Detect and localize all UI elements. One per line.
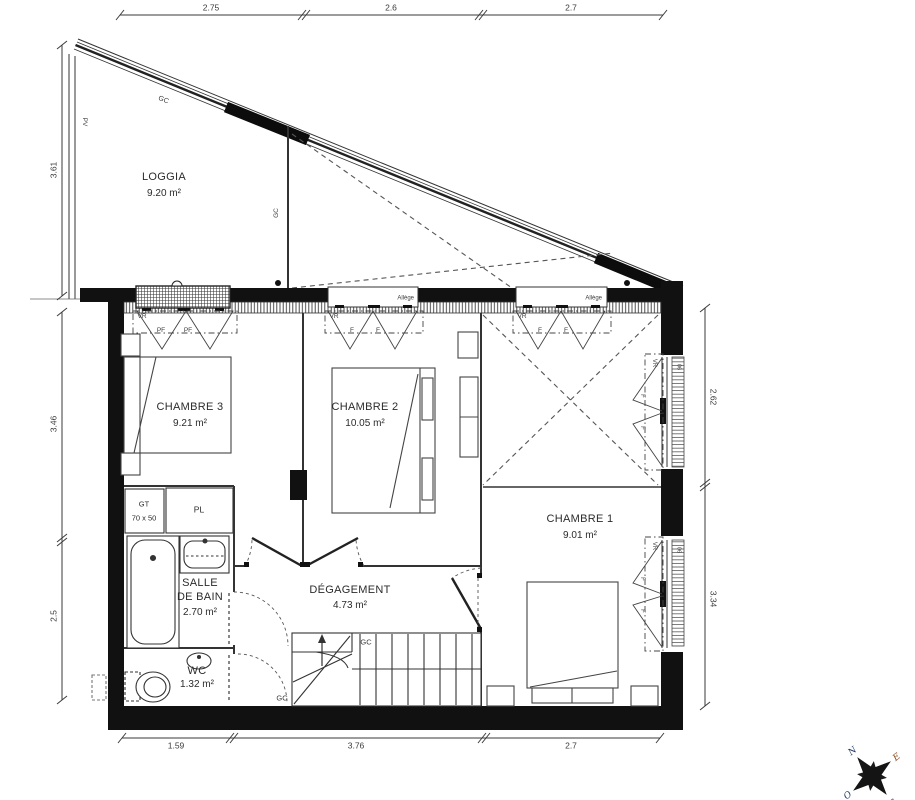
f-label-7: F: [637, 577, 645, 581]
dim-left-2: 3.46: [49, 416, 60, 433]
allege-label-1: Allège: [397, 295, 414, 303]
gc-wc-label: GC: [276, 693, 287, 702]
compass-rose-icon: N E S O: [822, 726, 915, 800]
f-label-4: F: [564, 327, 568, 335]
degagement-name: DÉGAGEMENT: [309, 584, 390, 598]
shutter-code-upper: 06: [675, 364, 682, 370]
compass-east-label: E: [891, 751, 903, 764]
loggia-under-slope-cross: [292, 134, 630, 288]
duct-block: [290, 470, 307, 500]
dim-right-2: 3.34: [708, 591, 719, 608]
pf-label-1: PF: [157, 327, 165, 335]
under-slope-zone: [483, 315, 661, 487]
vr-label-3: VR: [517, 313, 526, 321]
floor-plan: N E S O LOGGIA 9.20 m² CHAMBRE 3 9.21 m²…: [0, 0, 915, 800]
bathroom-fixtures: [125, 488, 233, 648]
chambre2-area: 10.05 m²: [345, 418, 384, 431]
chambre1-name: CHAMBRE 1: [547, 513, 614, 527]
salle-de-bain-name-2: DE BAIN: [177, 591, 223, 605]
wc-name: WC: [188, 665, 207, 679]
chambre3-area: 9.21 m²: [173, 418, 207, 431]
compass-north-label: N: [846, 745, 860, 759]
chambre3-name: CHAMBRE 3: [157, 401, 224, 415]
door-chambre2: [305, 538, 364, 567]
dim-left-1: 3.61: [49, 162, 60, 179]
gt-size-label: 70 x 50: [132, 513, 157, 522]
gc-divider-label: GC: [273, 208, 281, 218]
dim-bottom-3: 2.7: [565, 741, 577, 752]
pv-label: PV: [80, 118, 88, 127]
dim-bottom-1: 1.59: [168, 741, 185, 752]
loggia-sloped-glazing: [74, 39, 683, 292]
loggia-area: 9.20 m²: [147, 188, 181, 201]
f-label-6: F: [637, 426, 645, 430]
pl-label: PL: [194, 505, 204, 516]
dim-top-3: 2.7: [565, 3, 577, 14]
furniture-chambre1: [487, 582, 658, 706]
window-right-upper: [633, 354, 684, 470]
gt-label: GT: [139, 499, 149, 508]
degagement-area: 4.73 m²: [333, 600, 367, 613]
f-label-5: F: [637, 394, 645, 398]
loggia-name: LOGGIA: [142, 171, 186, 185]
floor-plan-drawing: N E S O: [0, 0, 915, 800]
f-label-3: F: [538, 327, 542, 335]
gc-stairs-label: GC: [360, 637, 371, 646]
pf-label-2: PF: [184, 327, 192, 335]
door-chambre3: [244, 538, 305, 567]
window-chambre3: [136, 281, 230, 311]
dim-top-1: 2.75: [203, 3, 220, 14]
compass-west-label: O: [842, 789, 854, 800]
loggia-left-wall: [69, 54, 75, 299]
vr-label-right-upper: VR: [649, 359, 657, 367]
staircase: [292, 633, 481, 706]
vr-label-2: VR: [329, 313, 338, 321]
door-chambre1: [452, 568, 482, 632]
f-label-2: F: [376, 327, 380, 335]
vr-label-1: VR: [137, 313, 146, 321]
vr-label-right-lower: VR: [649, 542, 657, 550]
dim-bottom-2: 3.76: [348, 741, 365, 752]
dim-top-2: 2.6: [385, 3, 397, 14]
f-label-1: F: [350, 327, 354, 335]
salle-de-bain-area: 2.70 m²: [183, 607, 217, 620]
wall-left: [108, 299, 124, 730]
window-right-lower: [633, 536, 684, 652]
wall-bottom: [108, 706, 683, 730]
salle-de-bain-name-1: SALLE: [182, 577, 218, 591]
chambre2-name: CHAMBRE 2: [332, 401, 399, 415]
gaine-technique-box: [125, 489, 164, 533]
dim-right-1: 2.62: [708, 389, 719, 406]
dim-left-3: 2.5: [49, 610, 60, 622]
f-label-8: F: [637, 609, 645, 613]
allege-label-2: Allège: [585, 295, 602, 303]
shutter-code-lower: 06: [675, 547, 682, 553]
chambre1-area: 9.01 m²: [563, 530, 597, 543]
door-salle-de-bain: [229, 592, 288, 646]
wc-area: 1.32 m²: [180, 679, 214, 692]
